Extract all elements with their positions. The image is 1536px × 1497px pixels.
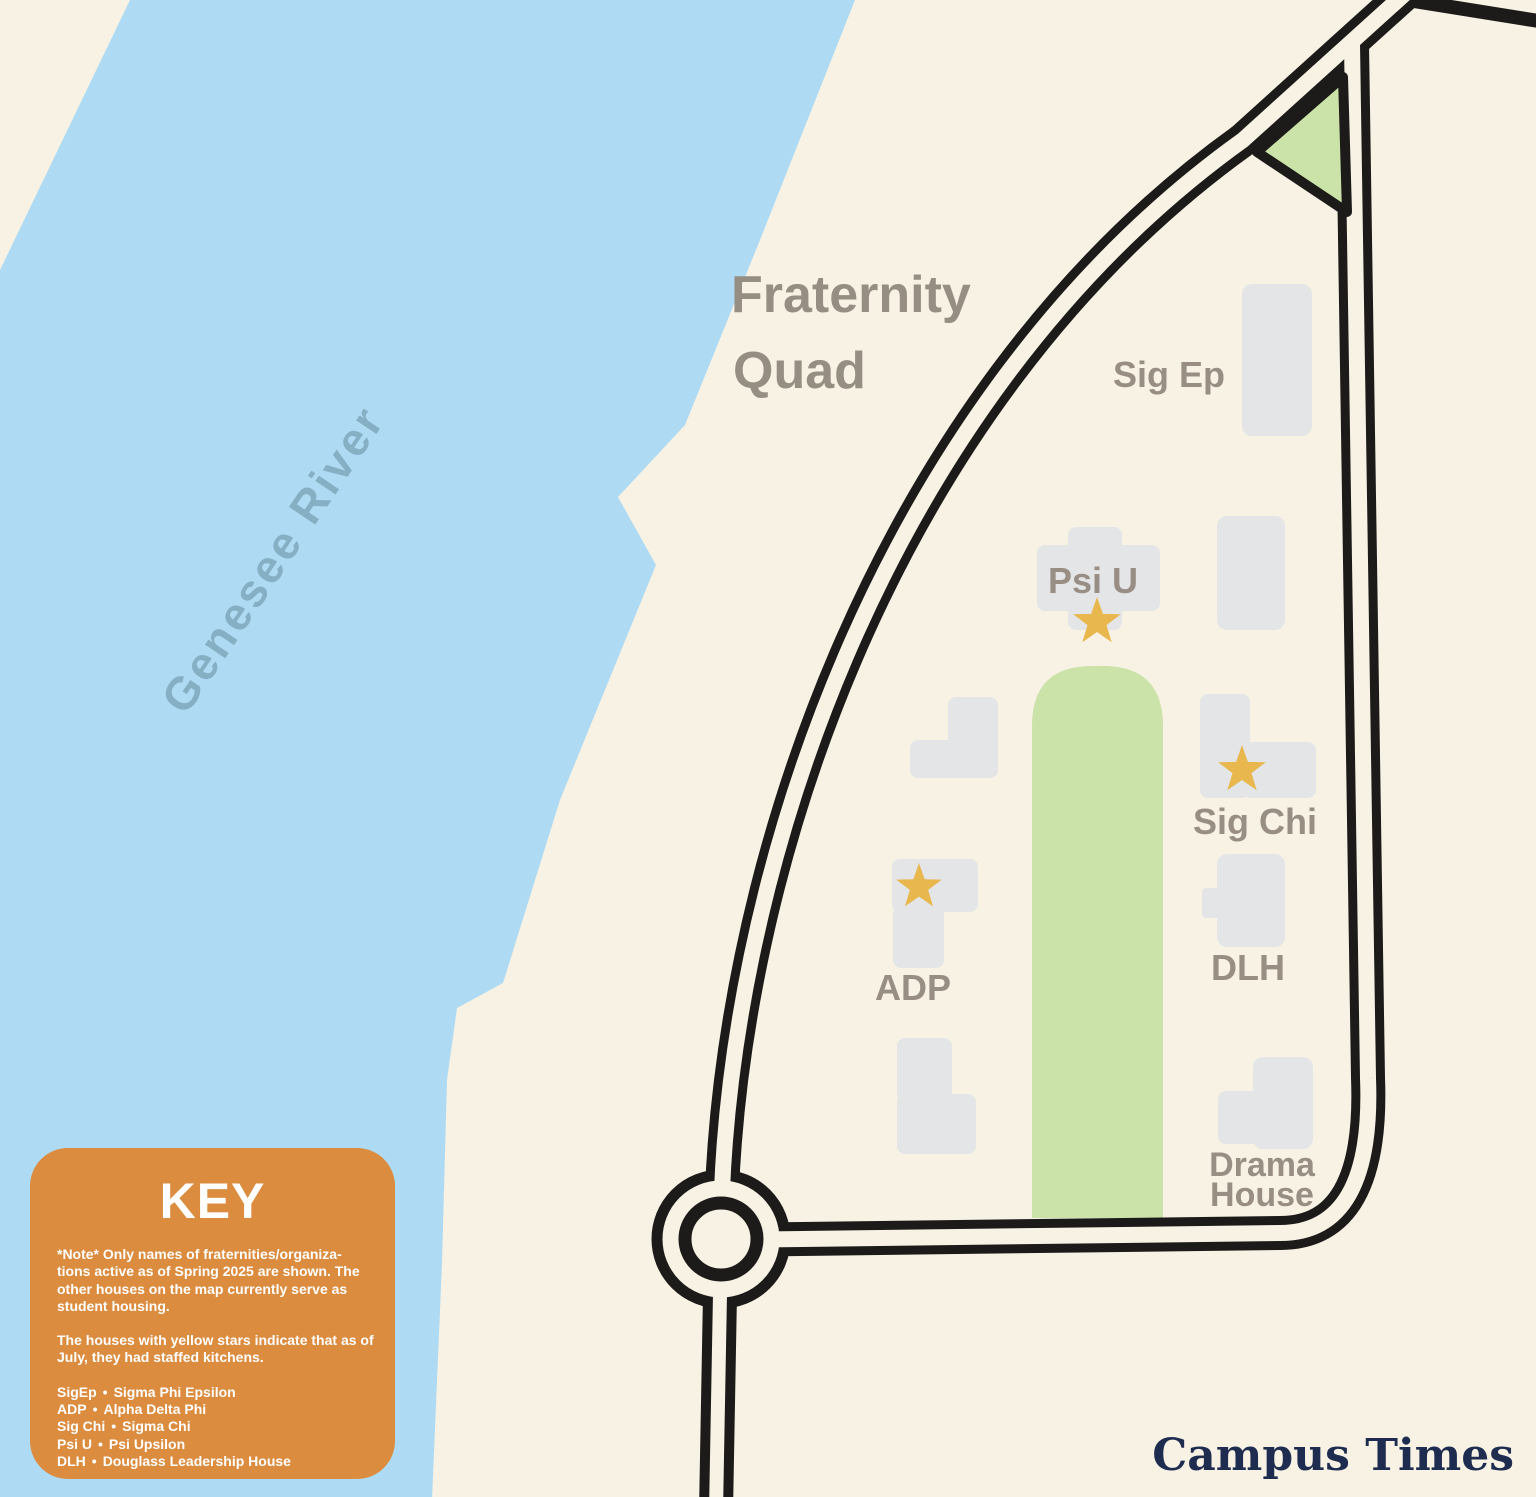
building-sig-chi (1200, 694, 1250, 798)
building-dlh (1217, 854, 1285, 947)
key-note-line: student housing. (57, 1298, 375, 1315)
legend-abbr: DLH (57, 1453, 86, 1469)
map-key: KEY *Note* Only names of fraternities/or… (30, 1148, 395, 1479)
legend-row: Psi U•Psi Upsilon (57, 1436, 375, 1453)
quad-lawn (1032, 666, 1163, 1218)
legend-bullet: • (111, 1418, 116, 1434)
key-note-line: *Note* Only names of fraternities/organi… (57, 1246, 375, 1263)
legend-bullet: • (98, 1436, 103, 1452)
legend-row: SigEp•Sigma Phi Epsilon (57, 1384, 375, 1401)
building-dlh-wing (1202, 888, 1222, 918)
campus-map: Genesee River Fraternity Quad Sig Ep (0, 0, 1536, 1497)
building-sig-ep (1242, 284, 1312, 436)
building-adp-wing (893, 906, 944, 968)
quad-title-line1: Fraternity (731, 266, 971, 324)
legend-full: Sigma Phi Epsilon (114, 1384, 236, 1400)
label-sig-chi: Sig Chi (1193, 801, 1317, 842)
key-legend: SigEp•Sigma Phi Epsilon ADP•Alpha Delta … (57, 1384, 375, 1470)
roundabout-island (685, 1203, 757, 1275)
campus-times-logo: Campus Times (1152, 1430, 1514, 1481)
legend-full: Douglass Leadership House (103, 1453, 291, 1469)
label-sig-ep: Sig Ep (1113, 354, 1225, 395)
quad-title-line2: Quad (733, 342, 866, 400)
label-drama-line2: House (1210, 1176, 1314, 1214)
building-unlabeled-1 (1217, 516, 1285, 630)
legend-bullet: • (93, 1401, 98, 1417)
legend-abbr: SigEp (57, 1384, 97, 1400)
key-note-line: other houses on the map currently serve … (57, 1281, 375, 1298)
label-dlh: DLH (1211, 947, 1285, 988)
legend-abbr: Psi U (57, 1436, 92, 1452)
legend-abbr: Sig Chi (57, 1418, 105, 1434)
legend-row: ADP•Alpha Delta Phi (57, 1401, 375, 1418)
key-kitchen-line: July, they had staffed kitchens. (57, 1349, 375, 1366)
key-note: *Note* Only names of fraternities/organi… (57, 1246, 375, 1315)
label-psi-u: Psi U (1048, 560, 1138, 601)
legend-row: Sig Chi•Sigma Chi (57, 1418, 375, 1435)
building-unlabeled-3 (897, 1038, 952, 1102)
legend-bullet: • (103, 1384, 108, 1400)
key-body: *Note* Only names of fraternities/organi… (30, 1230, 395, 1470)
building-unlabeled-2-wing (910, 740, 998, 778)
key-kitchen-line: The houses with yellow stars indicate th… (57, 1332, 375, 1349)
legend-full: Sigma Chi (122, 1418, 190, 1434)
key-title: KEY (30, 1172, 395, 1230)
key-kitchen-note: The houses with yellow stars indicate th… (57, 1332, 375, 1367)
label-adp: ADP (875, 967, 951, 1008)
legend-full: Alpha Delta Phi (103, 1401, 206, 1417)
building-drama-house-wing (1218, 1091, 1264, 1144)
legend-bullet: • (92, 1453, 97, 1469)
legend-full: Psi Upsilon (109, 1436, 185, 1452)
key-note-line: tions active as of Spring 2025 are shown… (57, 1263, 375, 1280)
legend-row: DLH•Douglass Leadership House (57, 1453, 375, 1470)
building-unlabeled-3-wing (897, 1094, 976, 1154)
legend-abbr: ADP (57, 1401, 87, 1417)
